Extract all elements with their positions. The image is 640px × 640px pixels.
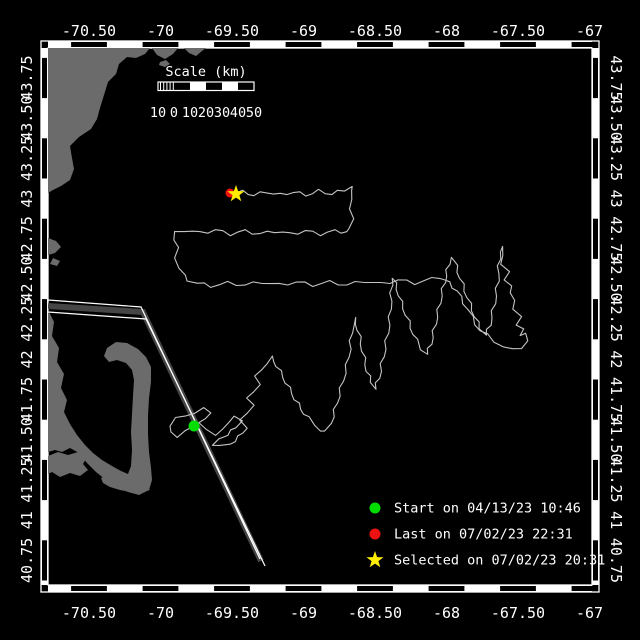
start-legend-dot-icon: [370, 503, 381, 514]
lon-tick-label-bottom: -67: [576, 604, 603, 622]
lat-tick-label-right: 41.75: [607, 377, 625, 422]
glider-track-map-window: -70.50-70.50-70-70-69.50-69.50-69-69-68.…: [0, 0, 640, 640]
legend-label: Last on 07/02/23 22:31: [394, 527, 573, 543]
lon-tick-label-bottom: -68.50: [348, 604, 402, 622]
frame-band-segment: [42, 540, 47, 580]
lat-tick-label-left: 43.50: [18, 96, 36, 141]
legend: Start on 04/13/23 10:46Last on 07/02/23 …: [366, 501, 605, 569]
frame-band-segment: [357, 42, 393, 47]
lat-tick-label-left: 43.75: [18, 55, 36, 100]
frame-band-segment: [500, 586, 536, 591]
lat-tick-label-right: 43.50: [607, 96, 625, 141]
frame-band-segment: [71, 586, 107, 591]
lat-tick-label-left: 40.75: [18, 538, 36, 583]
lon-tick-label-bottom: -70: [147, 604, 174, 622]
lat-tick-label-left: 42: [18, 350, 36, 368]
frame-band-segment: [429, 42, 465, 47]
lat-tick-label-left: 41.25: [18, 457, 36, 502]
frame-band-segment: [143, 42, 179, 47]
last-legend-dot-icon: [370, 529, 381, 540]
lon-tick-label-bottom: -69.50: [205, 604, 259, 622]
frame-band-segment: [572, 42, 592, 47]
lat-tick-label-left: 42.75: [18, 216, 36, 261]
lat-tick-label-right: 43: [607, 190, 625, 208]
lon-tick-label-bottom: -70.50: [62, 604, 116, 622]
lat-tick-label-left: 42.25: [18, 297, 36, 342]
frame-band-segment: [593, 58, 598, 98]
landmass-marthas-vineyard: [48, 452, 88, 477]
lon-tick-label-top: -67.50: [491, 22, 545, 40]
scale-bar-label: 50: [246, 105, 262, 121]
lon-tick-label-bottom: -68: [433, 604, 460, 622]
lon-tick-label-top: -69.50: [205, 22, 259, 40]
lat-tick-label-right: 42.75: [607, 216, 625, 261]
scale-bar-segment: [222, 82, 238, 91]
lat-tick-label-right: 42.25: [607, 297, 625, 342]
frame-band-segment: [429, 586, 465, 591]
lat-tick-label-left: 41.50: [18, 417, 36, 462]
scale-bar-label: 10: [150, 105, 166, 121]
frame-band-segment: [42, 460, 47, 500]
scale-bar-label: 40: [230, 105, 246, 121]
frame-band-segment: [214, 586, 250, 591]
frame-band-segment: [42, 138, 47, 178]
frame-band-segment: [500, 42, 536, 47]
lat-tick-label-left: 43.25: [18, 136, 36, 181]
scale-bar-label: 20: [198, 105, 214, 121]
lat-tick-label-right: 42: [607, 350, 625, 368]
lat-tick-label-right: 42.50: [607, 256, 625, 301]
frame-band-segment: [143, 586, 179, 591]
scale-bar-label: 30: [214, 105, 230, 121]
scale-bar-title: Scale (km): [165, 64, 246, 80]
frame-band-segment: [357, 586, 393, 591]
lat-tick-label-left: 41: [18, 511, 36, 529]
lat-tick-label-right: 41.25: [607, 457, 625, 502]
lon-tick-label-bottom: -67.50: [491, 604, 545, 622]
frame-band-segment: [42, 58, 47, 98]
lat-tick-label-right: 41: [607, 511, 625, 529]
lat-tick-label-left: 43: [18, 190, 36, 208]
frame-band-segment: [286, 586, 322, 591]
lat-tick-label-right: 43.25: [607, 136, 625, 181]
frame-band-segment: [42, 219, 47, 259]
lat-tick-label-left: 41.75: [18, 377, 36, 422]
lon-tick-label-top: -69: [290, 22, 317, 40]
lon-tick-label-top: -70: [147, 22, 174, 40]
frame-band-segment: [593, 380, 598, 420]
frame-band-segment: [593, 138, 598, 178]
scale-bar-segment: [190, 82, 206, 91]
legend-label: Selected on 07/02/23 20:31: [394, 553, 605, 569]
frame-band-segment: [214, 42, 250, 47]
frame-band-segment: [593, 460, 598, 500]
frame-band-segment: [42, 380, 47, 420]
lat-tick-label-left: 42.50: [18, 256, 36, 301]
lat-tick-label-right: 41.50: [607, 417, 625, 462]
lon-tick-label-top: -68: [433, 22, 460, 40]
map-plot-canvas: -70.50-70.50-70-70-69.50-69.50-69-69-68.…: [0, 0, 640, 640]
lat-tick-label-right: 40.75: [607, 538, 625, 583]
frame-band-segment: [572, 586, 592, 591]
frame-band-segment: [593, 219, 598, 259]
frame-band-segment: [71, 42, 107, 47]
lat-tick-label-right: 43.75: [607, 55, 625, 100]
frame-band-segment: [286, 42, 322, 47]
lon-tick-label-top: -68.50: [348, 22, 402, 40]
frame-band-segment: [42, 299, 47, 339]
frame-band-segment: [593, 299, 598, 339]
start-position-marker: [189, 421, 200, 432]
scale-bar-label: 0: [170, 105, 178, 121]
lon-tick-label-bottom: -69: [290, 604, 317, 622]
lon-tick-label-top: -67: [576, 22, 603, 40]
legend-label: Start on 04/13/23 10:46: [394, 501, 581, 517]
scale-bar-label: 10: [182, 105, 198, 121]
lon-tick-label-top: -70.50: [62, 22, 116, 40]
